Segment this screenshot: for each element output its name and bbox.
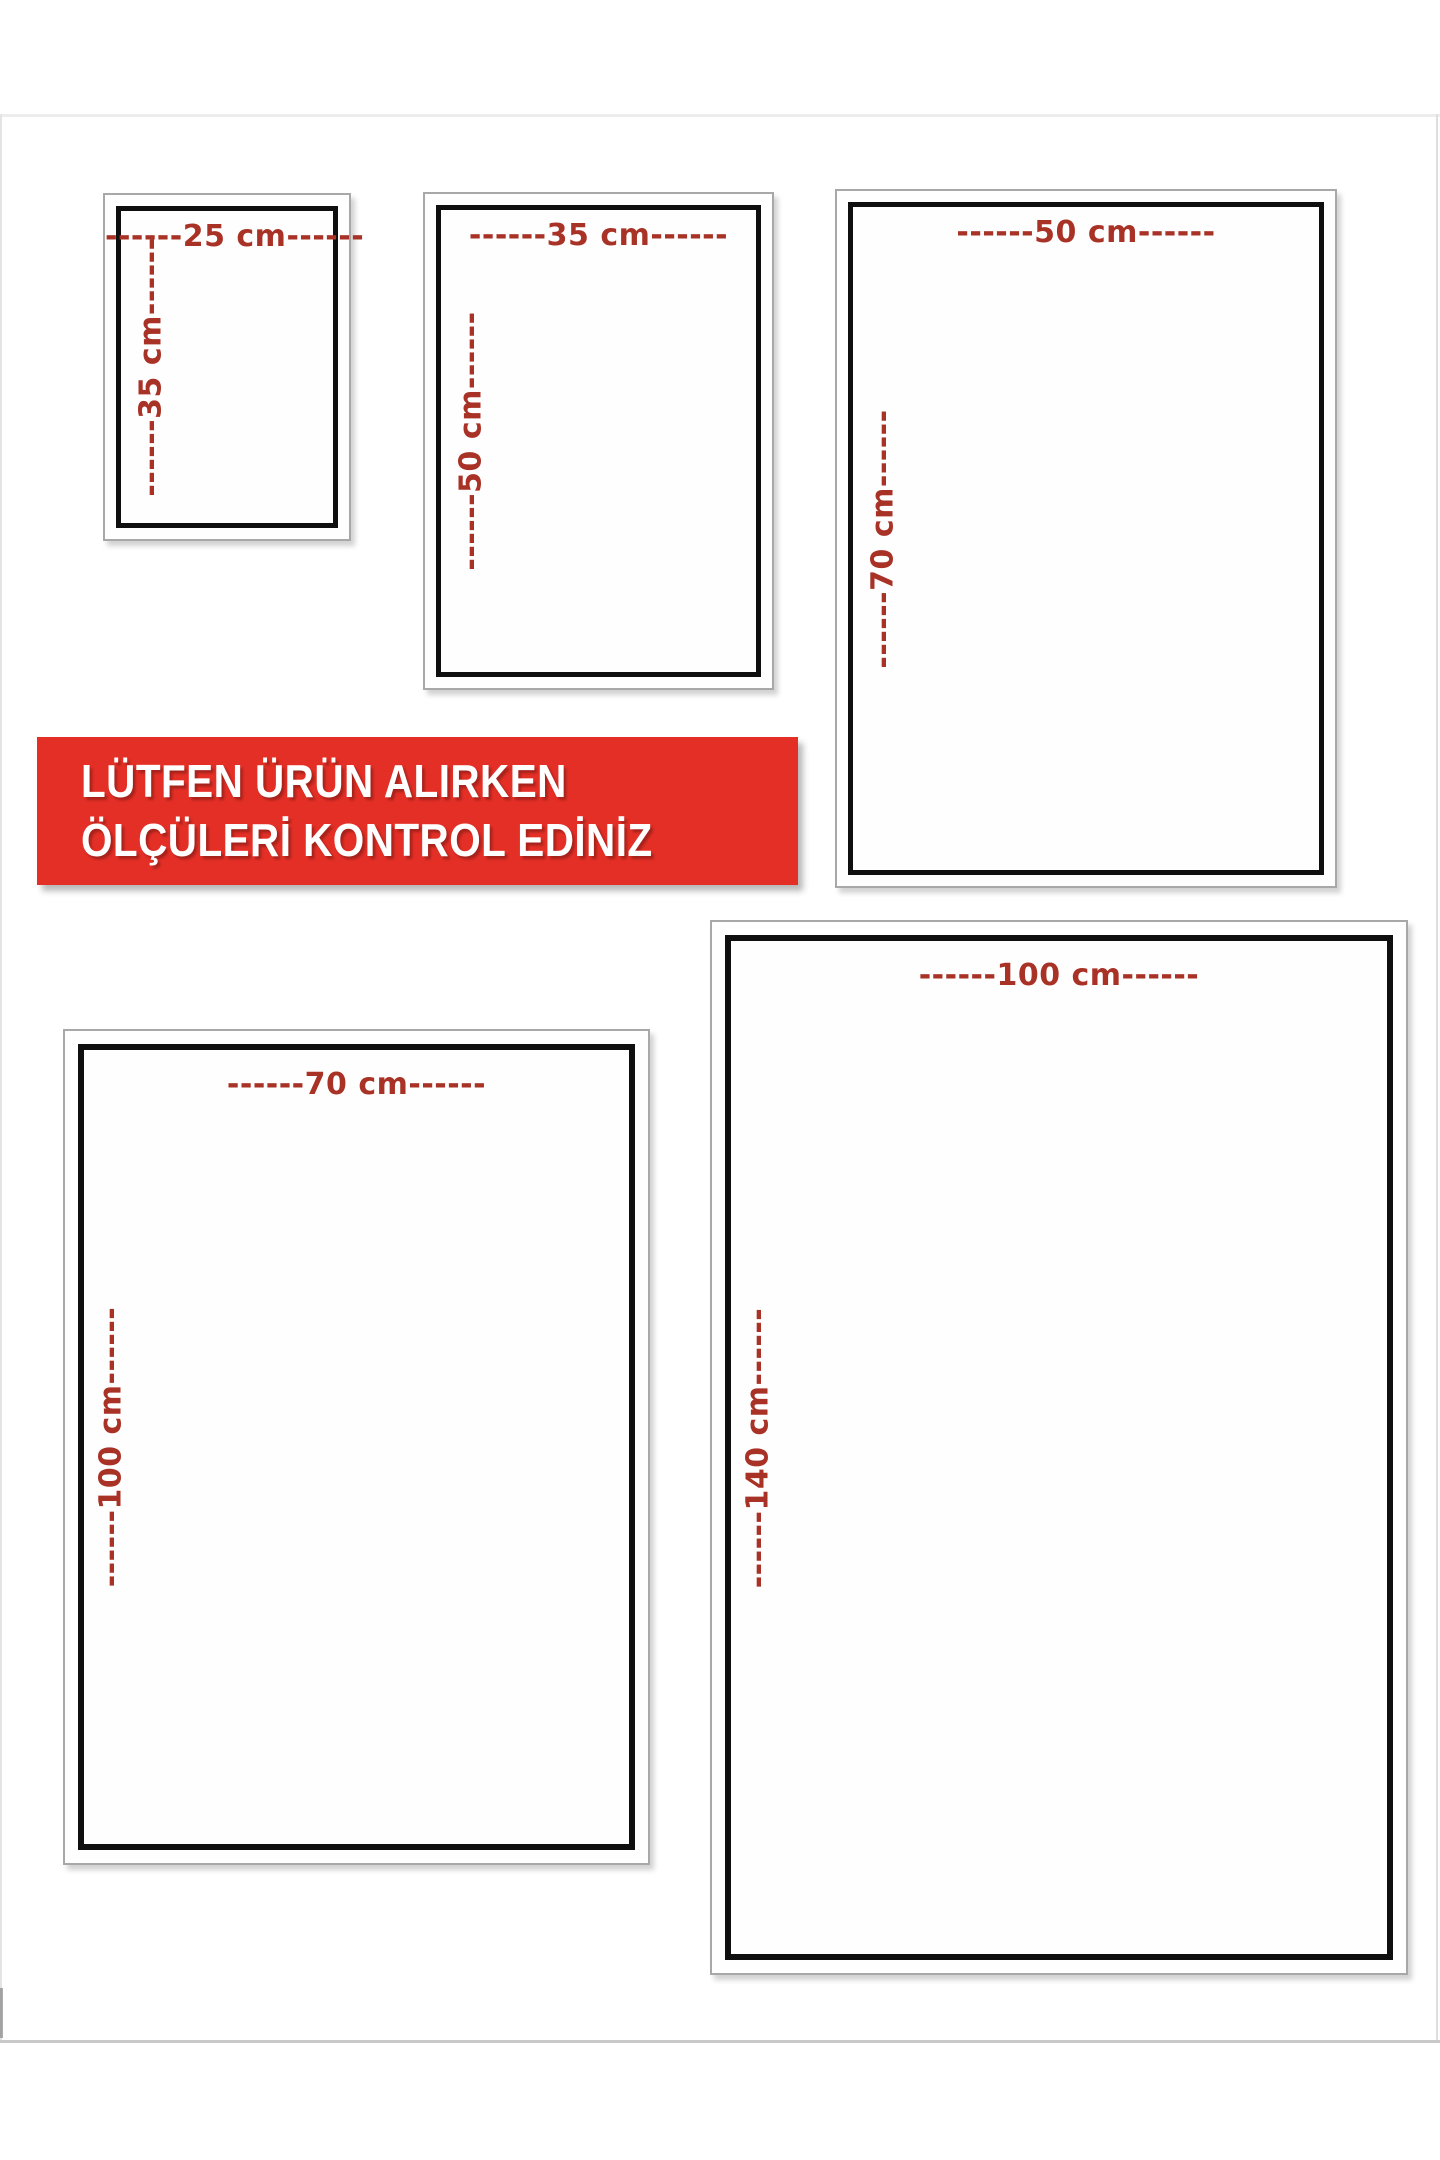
size-box-100x140: ------100 cm------ ------140 cm------ [710,920,1408,1975]
sheet-left-edge [0,114,2,2043]
inner-frame-70x100 [78,1044,635,1850]
height-label-140cm: ------140 cm------ [741,1307,776,1588]
inner-frame-100x140 [725,935,1393,1960]
width-label-35cm: ------35 cm------ [425,218,772,253]
inner-frame-50x70 [848,202,1324,875]
height-label-70cm: ------70 cm------ [866,409,901,668]
sheet-bottom-edge [0,2040,1440,2043]
height-label-100cm: ------100 cm------ [94,1307,129,1588]
size-box-70x100: ------70 cm------ ------100 cm------ [63,1029,650,1865]
width-label-70cm: ------70 cm------ [65,1067,648,1102]
width-label-50cm: ------50 cm------ [837,215,1335,250]
size-box-35x50: ------35 cm------ ------50 cm------ [423,192,774,690]
height-label-50cm: ------50 cm------ [454,311,489,570]
width-label-100cm: ------100 cm------ [712,958,1406,993]
sheet-crease-mark [0,1988,3,2038]
warning-banner: LÜTFEN ÜRÜN ALIRKEN ÖLÇÜLERİ KONTROL EDİ… [37,737,798,885]
sheet-right-edge [1436,114,1438,2043]
warning-banner-line1: LÜTFEN ÜRÜN ALIRKEN [81,756,712,808]
size-box-50x70: ------50 cm------ ------70 cm------ [835,189,1337,888]
size-guide-image: ------25 cm------ ------35 cm------ ----… [0,0,1440,2160]
size-box-25x35: ------25 cm------ ------35 cm------ [103,193,351,541]
sheet-top-edge [0,114,1440,117]
warning-banner-line2: ÖLÇÜLERİ KONTROL EDİNİZ [81,815,712,867]
height-label-35cm: ------35 cm------ [134,237,169,496]
